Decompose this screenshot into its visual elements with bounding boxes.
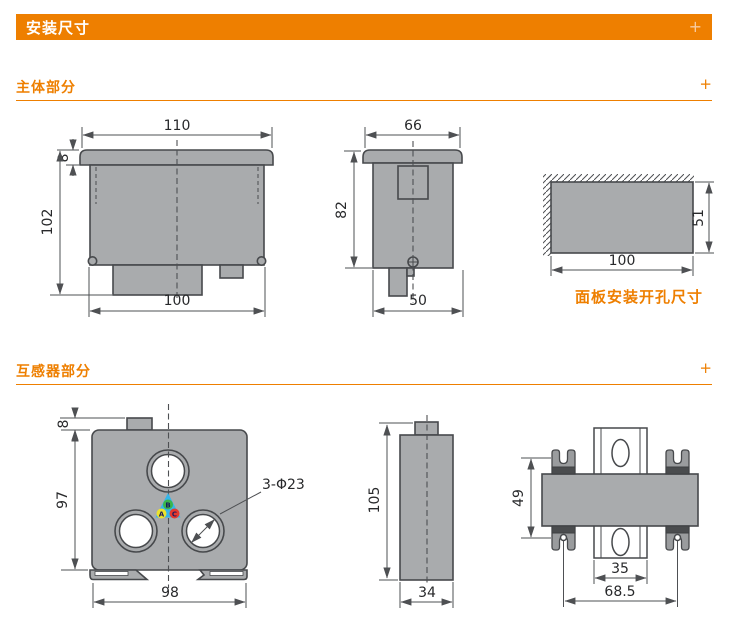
technical-drawings: 110 8 102 100: [0, 0, 730, 629]
dim-label-8: 8: [56, 154, 72, 163]
dim-ct-side-width: 34: [400, 582, 453, 608]
dim-front-bezel: 8: [56, 139, 79, 176]
terminal-tab: [220, 265, 243, 278]
mounting-ear: [88, 257, 96, 265]
dim-label-51: 51: [691, 209, 707, 227]
panel-cutout-view: 51 100: [543, 174, 714, 276]
installation-dimensions-page: 安装尺寸 + 主体部分 + 互感器部分 + 面板安装开孔尺寸: [0, 0, 730, 629]
dim-label-34: 34: [418, 585, 436, 601]
dim-label-49: 49: [511, 489, 527, 507]
phase-b-label: B: [165, 502, 170, 510]
ct-front-view: B A C 8 97 98: [55, 404, 305, 608]
meter-front-view: 110 8 102 100: [40, 118, 273, 317]
dim-ct-height: 97: [55, 430, 90, 570]
ct-side-view: 105 34: [367, 415, 453, 608]
ct-hole: [120, 515, 153, 548]
dim-label-100: 100: [609, 253, 636, 269]
dim-mount-rail-width: 35: [594, 560, 647, 584]
dim-cutout-width: 100: [551, 253, 693, 276]
dim-ct-width: 98: [93, 583, 246, 608]
dim-label-98: 98: [161, 585, 179, 601]
phase-c-label: C: [172, 511, 177, 519]
dim-label-8: 8: [56, 420, 72, 429]
panel-cutout-rect: [551, 182, 693, 253]
dim-label-102: 102: [40, 209, 56, 236]
dim-label-100: 100: [164, 293, 191, 309]
meter-side-view: 66 82 50: [334, 118, 463, 317]
ct-mount-view: 49 35 68.5: [511, 428, 698, 607]
terminal-block: [113, 265, 202, 295]
dim-label-50: 50: [409, 293, 427, 309]
phase-a-label: A: [159, 511, 165, 519]
dim-label-110: 110: [164, 118, 191, 134]
dim-label-82: 82: [334, 201, 350, 219]
rear-stud: [389, 268, 407, 296]
dim-label-holes: 3-Φ23: [262, 477, 305, 493]
dim-label-68-5: 68.5: [604, 584, 635, 600]
dim-label-97: 97: [55, 491, 71, 509]
rail-slot: [612, 440, 629, 467]
rail-slot: [612, 529, 629, 556]
ct-mount-bar: [542, 474, 698, 526]
dim-label-105: 105: [367, 487, 383, 514]
dim-label-66: 66: [404, 118, 422, 134]
dim-cutout-height: 51: [691, 182, 714, 253]
hatching: [543, 174, 551, 256]
dim-side-height: 82: [334, 151, 361, 267]
dim-side-bottom-width: 50: [373, 270, 463, 317]
ct-top-tab: [127, 418, 152, 430]
dim-label-35: 35: [611, 561, 629, 577]
hatching: [546, 174, 694, 182]
mounting-ear: [257, 257, 265, 265]
